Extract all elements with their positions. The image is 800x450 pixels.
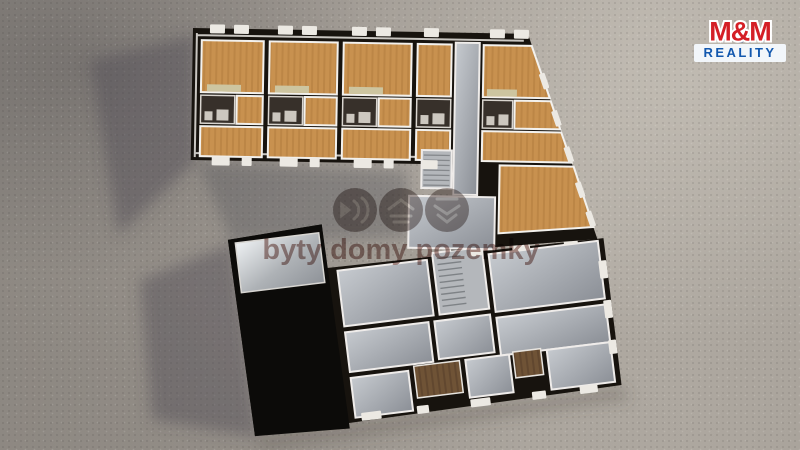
brand-logo: M&M M&M REALITY xyxy=(694,16,786,62)
central-corridor xyxy=(453,43,480,195)
lower-staircase xyxy=(432,247,489,315)
building-floorplan-render xyxy=(0,0,800,450)
brand-reality-text: REALITY xyxy=(694,44,786,62)
glossy-room xyxy=(235,233,324,293)
brand-mm-text: M&M xyxy=(709,17,770,47)
render-canvas: byty domy pozemky M&M M&M REALITY xyxy=(0,0,800,450)
connector-room xyxy=(408,196,495,249)
